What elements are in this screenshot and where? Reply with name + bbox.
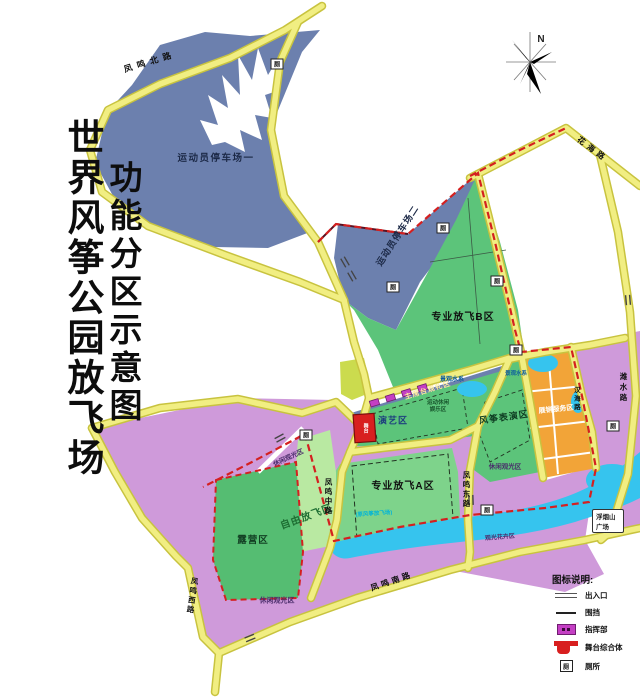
legend-label: 厕所 (585, 661, 600, 672)
toilet-icon: 厕 (300, 430, 313, 441)
legend-title: 图标说明: (552, 572, 638, 586)
legend-row-entrance: 出入口 (552, 590, 638, 601)
zone-camping-shape (213, 462, 303, 600)
kite-park-map: 世界风筝公园放飞场 功能分区示意图 N 运动员停车场一 运动员停车场二 专业放飞… (0, 0, 640, 697)
toilet-symbol-icon: 厕 (560, 660, 573, 672)
legend-row-command: 指挥部 (552, 624, 638, 635)
stage-complex-marker (353, 413, 376, 442)
map-legend: 图标说明: 出入口 围挡 指挥部 舞台综合体 厕 厕所 (552, 572, 638, 678)
toilet-icon: 厕 (510, 345, 523, 356)
toilet-icon: 厕 (271, 59, 284, 70)
toilet-icon: 厕 (607, 421, 620, 432)
command-symbol-icon (557, 624, 576, 635)
toilet-icon: 厕 (437, 223, 450, 234)
entrance-symbol-icon (552, 592, 580, 600)
toilet-icon: 厕 (481, 505, 494, 516)
legend-row-stage: 舞台综合体 (552, 641, 638, 654)
plaza-badge: 浮烟山广场 (592, 509, 624, 533)
page-subtitle: 功能分区示意图 (99, 160, 147, 426)
toilet-icon: 厕 (387, 282, 400, 293)
legend-label: 舞台综合体 (585, 642, 623, 653)
fence-symbol-icon (552, 612, 580, 614)
legend-row-fence: 围挡 (552, 607, 638, 618)
legend-label: 围挡 (585, 607, 600, 618)
compass-rose-icon (506, 32, 556, 94)
legend-row-toilet: 厕 厕所 (552, 660, 638, 672)
legend-label: 指挥部 (585, 624, 608, 635)
legend-label: 出入口 (585, 590, 608, 601)
pond-performance-shape (457, 381, 487, 397)
toilet-icon: 厕 (491, 276, 504, 287)
stage-symbol-icon (554, 641, 578, 654)
